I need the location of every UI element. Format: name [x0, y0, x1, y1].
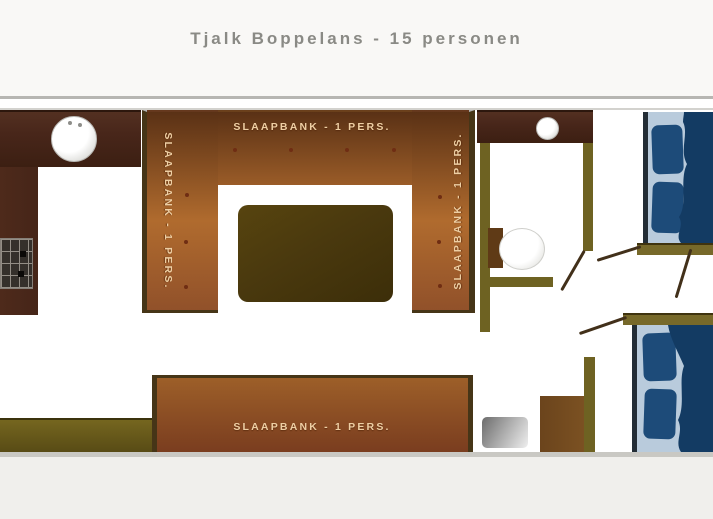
corridor-wall: [584, 357, 595, 452]
toilet-wall-bottom: [487, 277, 553, 287]
sleeping-bench-bottom: [152, 375, 473, 452]
bench-dot: [438, 195, 442, 199]
sleeping-bench-left: [142, 110, 218, 313]
double-bed-bottom: [637, 325, 713, 452]
bench-label-top: SLAAPBANK - 1 PERS.: [212, 121, 412, 133]
bench-dot: [184, 285, 188, 289]
bench-label-right: SLAAPBANK - 1 PERS.: [452, 111, 464, 311]
bench-dot: [437, 240, 441, 244]
toilet-sink-icon: [536, 117, 559, 140]
cabin1-wall: [637, 243, 713, 255]
bench-dot: [185, 193, 189, 197]
bench-label-bottom: SLAAPBANK - 1 PERS.: [212, 421, 412, 433]
bench-dot: [392, 148, 396, 152]
kitchen-sink-icon: [51, 116, 97, 162]
entrance-steps: [482, 417, 528, 448]
double-bed-top: [648, 112, 713, 243]
bench-dot: [345, 148, 349, 152]
bench-dot: [184, 240, 188, 244]
page-title: Tjalk Boppelans - 15 personen: [0, 29, 713, 49]
toilet-icon: [499, 228, 545, 270]
bench-label-left: SLAAPBANK - 1 PERS.: [162, 111, 174, 311]
cabin2-wall: [623, 313, 713, 325]
sleeping-bench-right: [412, 110, 475, 313]
stern-wall: [0, 418, 152, 452]
page-background-lower: [0, 457, 713, 519]
stove-icon: [0, 238, 33, 289]
bench-dot: [233, 148, 237, 152]
hull-top-deck-line: [0, 96, 713, 110]
bench-dot: [438, 284, 442, 288]
bench-dot: [289, 148, 293, 152]
toilet-counter: [477, 110, 593, 143]
dinette-table: [238, 205, 393, 302]
toilet-wall-right: [583, 143, 593, 251]
cabinet: [540, 396, 584, 452]
